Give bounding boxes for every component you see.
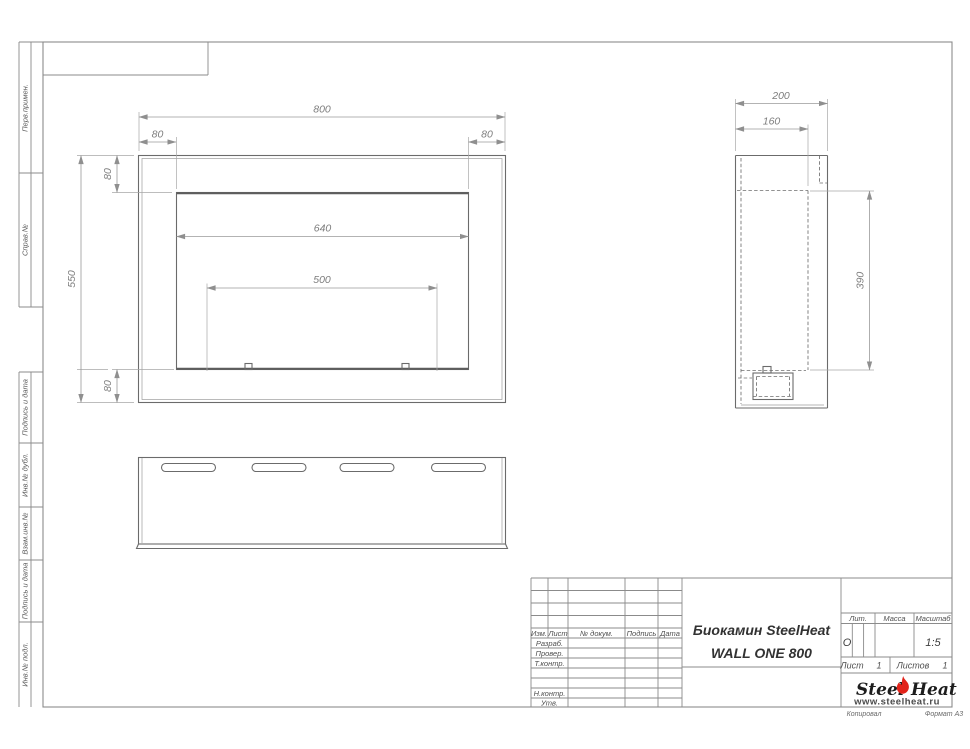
dim-text-500: 500 — [313, 274, 331, 286]
vent-slot-3 — [340, 464, 394, 472]
margin-label-sprav: Справ.№ — [21, 224, 30, 256]
side-extension-lines — [736, 99, 875, 370]
margin-label-inv-podl: Инв.№ подл. — [21, 642, 30, 686]
product-title-line1: Биокамин SteelHeat — [693, 622, 831, 638]
dim-text-160: 160 — [763, 116, 781, 128]
dim-text-390: 390 — [855, 272, 867, 290]
dim-text-80-right: 80 — [481, 129, 493, 141]
side-burner-tab — [763, 367, 771, 374]
footer-format: Формат А3 — [925, 711, 963, 718]
dim-text-640: 640 — [314, 223, 332, 235]
row-razrab: Разраб. — [536, 639, 563, 648]
margin-top-grid — [19, 42, 43, 307]
side-burner-box — [753, 373, 793, 400]
brand-logo: Steel Heat www.steelheat.ru — [853, 676, 957, 708]
row-tkontr: Т.контр. — [534, 659, 564, 668]
dim-text-80-bottom: 80 — [102, 380, 114, 392]
mass-label: Масса — [883, 614, 905, 623]
sheet-value: 1 — [876, 661, 881, 671]
vent-slot-4 — [432, 464, 486, 472]
col-list: Лист — [547, 629, 567, 638]
margin-label-vzam-inv: Взам.инв.№ — [21, 512, 30, 554]
margin-label-podpis-data-1: Подпись и дата — [21, 379, 30, 436]
side-view-dimensions: 200 160 390 — [736, 90, 875, 370]
sheet-label: Лист — [839, 661, 864, 671]
margin-column-bottom: Подпись и дата Инв.№ дубл. Взам.инв.№ По… — [19, 372, 43, 707]
product-title-line2: WALL ONE 800 — [711, 645, 812, 661]
col-izm: Изм. — [531, 629, 547, 638]
margin-column-top: Перв.примен. Справ.№ — [19, 42, 43, 307]
row-nkontr: Н.контр. — [534, 689, 566, 698]
dim-text-80-top: 80 — [102, 168, 114, 180]
sheet-footer: Копировал Формат А3 — [847, 711, 964, 718]
side-hidden-lines — [737, 156, 828, 405]
scale-value: 1:5 — [925, 637, 941, 649]
flame-icon — [897, 676, 909, 694]
sheets-value: 1 — [942, 661, 947, 671]
footer-copied: Копировал — [847, 711, 882, 718]
sheets-label: Листов — [896, 661, 930, 671]
col-date: Дата — [659, 629, 680, 638]
margin-label-podpis-data-2: Подпись и дата — [21, 563, 30, 620]
bottom-lower-edge — [137, 544, 508, 549]
dim-text-200: 200 — [771, 90, 790, 102]
bottom-view — [137, 458, 508, 549]
bottom-inner-lines — [142, 458, 502, 543]
drawing-sheet: Перв.примен. Справ.№ Подпись и дата Инв.… — [0, 0, 970, 749]
row-utv: Утв. — [540, 699, 558, 708]
drawing-canvas: Перв.примен. Справ.№ Подпись и дата Инв.… — [0, 0, 970, 749]
vent-slot-2 — [252, 464, 306, 472]
dim-text-800: 800 — [313, 104, 331, 116]
dim-text-80-left: 80 — [152, 129, 164, 141]
row-prover: Провер. — [536, 649, 564, 658]
top-left-box — [43, 42, 208, 75]
lit-value: О — [843, 637, 852, 649]
bottom-outer-contour — [139, 458, 506, 545]
vent-slot-1 — [162, 464, 216, 472]
margin-label-inv-dubl: Инв.№ дубл. — [21, 453, 30, 497]
lit-label: Лит. — [848, 614, 867, 623]
front-view-dimensions: 800 80 80 80 550 80 640 500 — [66, 104, 505, 403]
scale-label: Масштаб — [915, 614, 951, 623]
col-sign: Подпись — [627, 629, 657, 638]
dim-text-550: 550 — [66, 270, 78, 288]
logo-site-url: www.steelheat.ru — [853, 697, 940, 708]
col-doc: № докум. — [580, 629, 613, 638]
margin-label-perv-primen: Перв.примен. — [21, 84, 30, 132]
